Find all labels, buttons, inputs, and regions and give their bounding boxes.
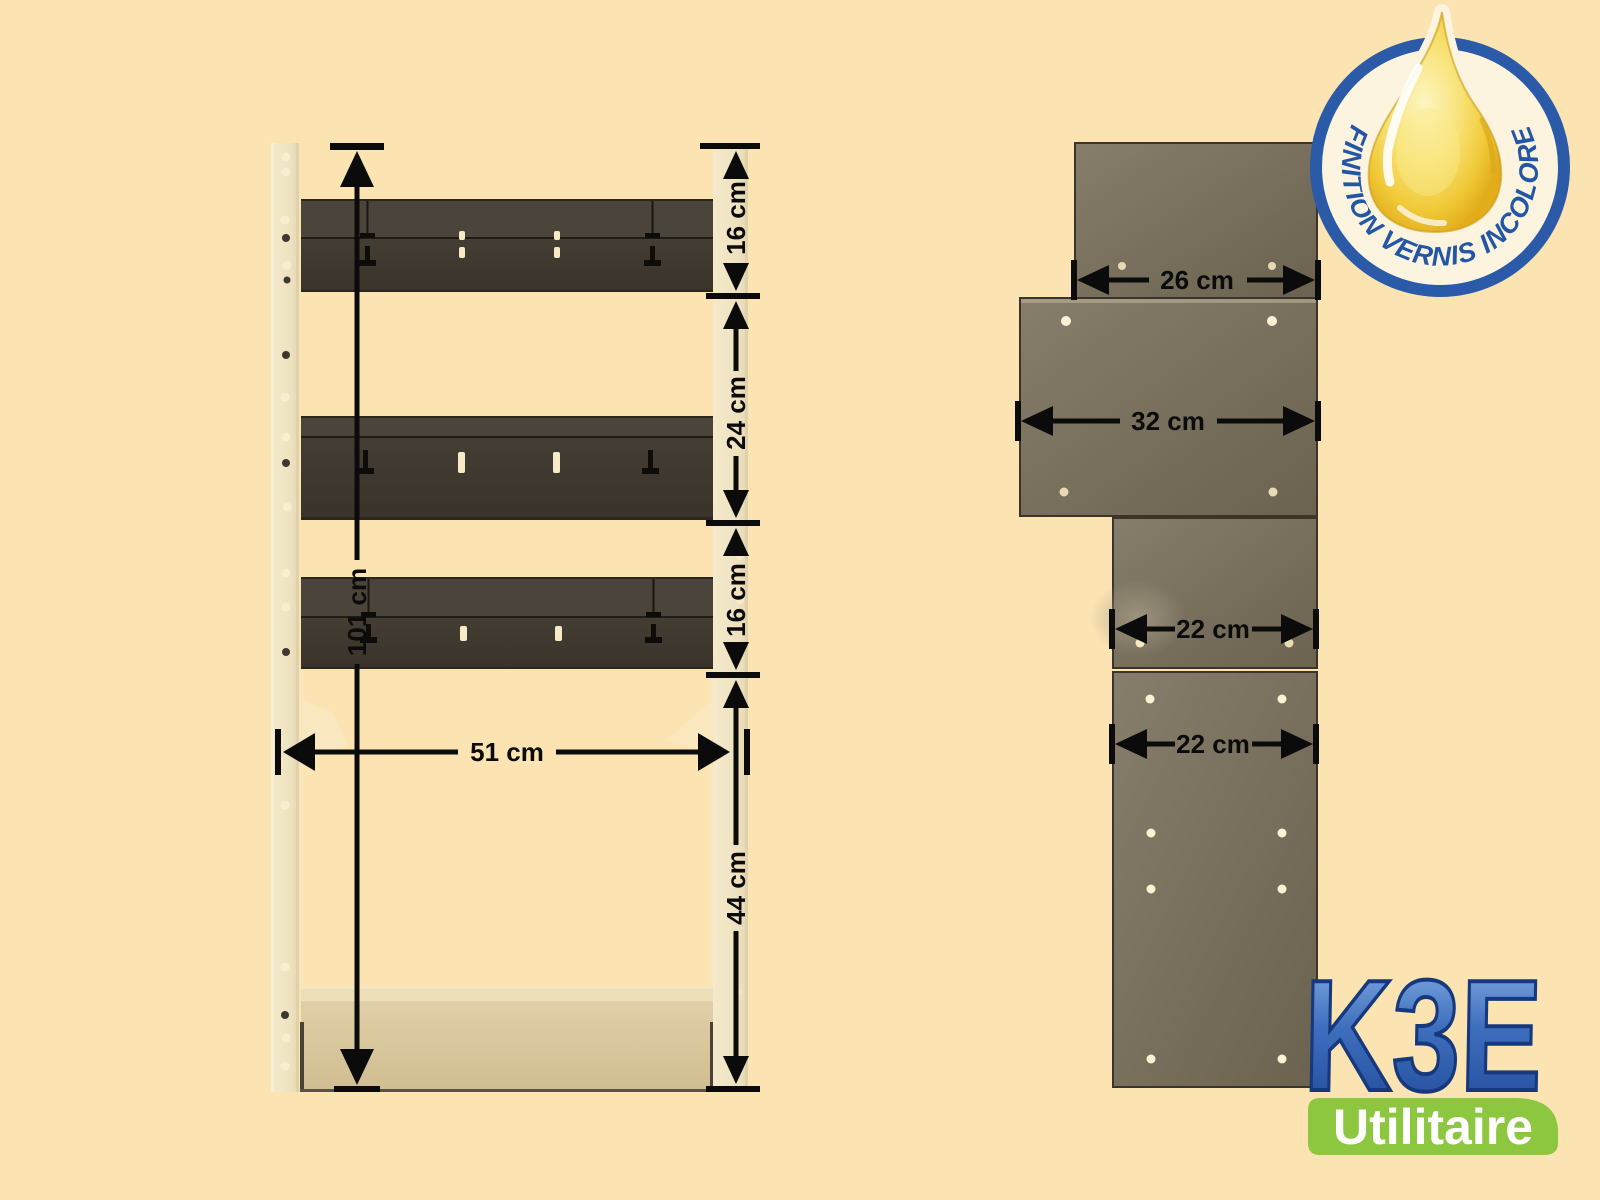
finish-badge: FINITION VERNIS INCOLORE <box>1316 12 1564 291</box>
dim-seg4-label: 44 cm <box>721 851 751 925</box>
dim-panel3-label: 22 cm <box>1176 614 1250 644</box>
side-view: 26 cm 32 cm 22 cm <box>1015 143 1321 1087</box>
side-panel-3 <box>1090 518 1317 668</box>
product-image: 16 cm 24 cm 16 cm 44 cm <box>0 0 1600 1200</box>
front-bottom-tray <box>300 986 714 1092</box>
dim-panel2-label: 32 cm <box>1131 406 1205 436</box>
bay-highlights <box>300 673 713 988</box>
dim-panel1-label: 26 cm <box>1160 265 1234 295</box>
dim-seg1-label: 16 cm <box>721 181 751 255</box>
front-left-upright <box>271 143 299 1092</box>
dim-height-label: 101 cm <box>342 568 372 656</box>
logo-tagline: Utilitaire <box>1333 1099 1533 1155</box>
dim-panel4-label: 22 cm <box>1176 729 1250 759</box>
logo-text: K3E <box>1302 948 1543 1124</box>
dim-width-label: 51 cm <box>470 737 544 767</box>
brand-logo: K3E Utilitaire <box>1302 948 1558 1155</box>
dim-panel-1: 26 cm <box>1071 260 1321 300</box>
dim-seg3-label: 16 cm <box>721 563 751 637</box>
front-shelf-1 <box>301 199 721 292</box>
front-shelf-2 <box>301 416 721 520</box>
dim-seg2-label: 24 cm <box>721 376 751 450</box>
shelving-diagram: 16 cm 24 cm 16 cm 44 cm <box>0 0 1600 1200</box>
front-view: 16 cm 24 cm 16 cm 44 cm <box>271 143 760 1092</box>
